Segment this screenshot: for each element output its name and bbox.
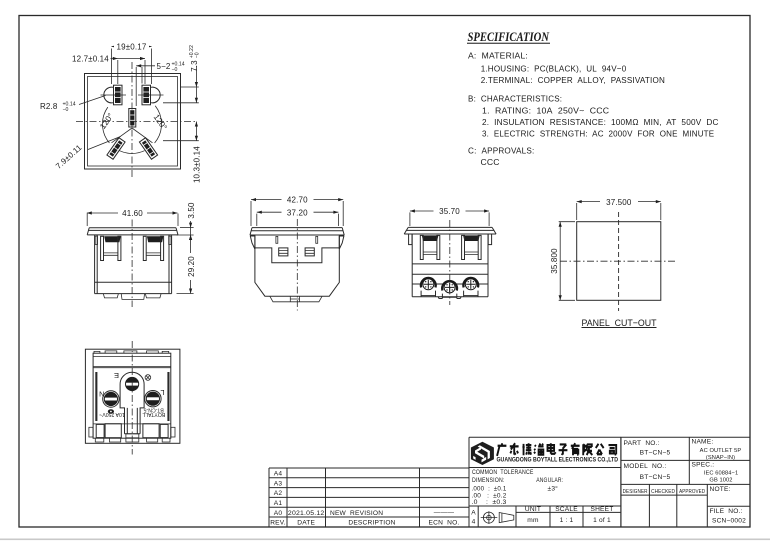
svg-text:.0 : ±0.3: .0 : ±0.3 — [472, 499, 507, 506]
svg-text:mm: mm — [527, 517, 539, 524]
svg-text:A0: A0 — [274, 510, 283, 517]
svg-text:E: E — [114, 371, 119, 380]
svg-text:7.3: 7.3 — [190, 60, 199, 72]
svg-text:4: 4 — [472, 519, 476, 526]
svg-text:BT-CN-5: BT-CN-5 — [144, 406, 164, 412]
svg-text:SPECIFICATION: SPECIFICATION — [468, 30, 550, 44]
svg-text:MODEL NO.:: MODEL NO.: — [624, 463, 667, 470]
svg-text:SHEET: SHEET — [591, 506, 614, 513]
svg-text:APPROVED: APPROVED — [679, 489, 705, 495]
svg-text:R2.8: R2.8 — [40, 102, 58, 111]
svg-text:10.3±0.14: 10.3±0.14 — [193, 146, 202, 183]
svg-text:42.70: 42.70 — [287, 196, 308, 205]
svg-text:1.HOUSING: PC(BLACK), UL 94: 1.HOUSING: PC(BLACK), UL 94V−0 — [481, 64, 627, 74]
svg-text:37.500: 37.500 — [606, 198, 632, 207]
svg-text:GUANGDONG BOYTALL ELECTRONICS: GUANGDONG BOYTALL ELECTRONICS CO.,LTD — [497, 457, 619, 464]
svg-text:19±0.17: 19±0.17 — [117, 42, 147, 51]
svg-text:2.TERMINAL: COPPER ALLOY, P: 2.TERMINAL: COPPER ALLOY, PASSIVATION — [481, 75, 665, 85]
svg-text:12.7±0.14: 12.7±0.14 — [72, 55, 109, 64]
svg-text:DESIGNER: DESIGNER — [623, 489, 648, 495]
svg-text:−0: −0 — [63, 107, 69, 113]
svg-text:DATE: DATE — [297, 520, 315, 527]
svg-text:L: L — [160, 388, 164, 397]
svg-text:(SNAP−IN): (SNAP−IN) — [706, 455, 735, 461]
svg-text:NEW REVISION: NEW REVISION — [330, 510, 383, 517]
svg-text:COMMON TOLERANCE: COMMON TOLERANCE — [472, 469, 534, 476]
svg-text:A: MATERIAL:: A: MATERIAL: — [468, 51, 528, 61]
svg-text:CHECKED: CHECKED — [651, 489, 675, 495]
svg-text:A4: A4 — [274, 471, 283, 478]
svg-text:B: CHARACTERISTICS:: B: CHARACTERISTICS: — [468, 94, 562, 104]
svg-text:3.50: 3.50 — [187, 202, 196, 219]
svg-text:ANGULAR:: ANGULAR: — [536, 477, 563, 484]
svg-text:1. RATING: 10A 250V~ CCC: 1. RATING: 10A 250V~ CCC — [482, 106, 609, 116]
svg-text:37.20: 37.20 — [287, 208, 308, 217]
svg-text:NOTE:: NOTE: — [710, 486, 731, 493]
svg-text:A1: A1 — [274, 500, 283, 507]
svg-text:GB 1002: GB 1002 — [709, 478, 732, 484]
svg-text:BT−CN−5: BT−CN−5 — [640, 474, 671, 481]
svg-text:PANEL CUT−OUT: PANEL CUT−OUT — [582, 318, 657, 329]
svg-text:1 : 1: 1 : 1 — [560, 517, 574, 524]
svg-text:−0: −0 — [195, 52, 201, 58]
svg-text:REV.: REV. — [270, 520, 286, 527]
svg-text:2021.05.12: 2021.05.12 — [288, 510, 325, 517]
svg-text:2. INSULATION RESISTANCE: 1: 2. INSULATION RESISTANCE: 100MΩ MIN, AT … — [482, 117, 719, 127]
svg-text:3. ELECTRIC STRENGTH: AC 2: 3. ELECTRIC STRENGTH: AC 2000V FOR ONE M… — [482, 129, 714, 139]
svg-text:C: APPROVALS:: C: APPROVALS: — [468, 145, 534, 155]
svg-text:41.60: 41.60 — [122, 209, 143, 218]
svg-text:———: ——— — [434, 509, 455, 516]
svg-text:SCN−0002: SCN−0002 — [712, 518, 746, 525]
svg-text:PART NO.:: PART NO.: — [624, 440, 660, 447]
svg-text:AC OUTLET 5P: AC OUTLET 5P — [700, 448, 742, 454]
svg-text:SPEC.:: SPEC.: — [692, 462, 715, 469]
svg-text:NAME:: NAME: — [692, 439, 714, 446]
svg-text:SCALE: SCALE — [555, 506, 578, 513]
svg-text:10A 250V~: 10A 250V~ — [99, 411, 125, 417]
svg-text:DIMENSION:: DIMENSION: — [472, 477, 505, 484]
svg-text:A2: A2 — [274, 490, 283, 497]
svg-text:±3°: ±3° — [548, 484, 559, 492]
svg-text:35.70: 35.70 — [439, 207, 460, 216]
svg-text:35.800: 35.800 — [550, 248, 559, 274]
svg-text:A: A — [471, 510, 476, 517]
svg-text:.000 : ±0.1: .000 : ±0.1 — [472, 485, 507, 492]
svg-text:DESCRIPTION: DESCRIPTION — [348, 520, 395, 527]
svg-text:FILE NO.:: FILE NO.: — [710, 508, 743, 515]
svg-text:ECN NO.: ECN NO. — [429, 520, 460, 527]
svg-text:CCC: CCC — [481, 157, 500, 167]
svg-text:BT−CN−5: BT−CN−5 — [640, 450, 671, 457]
svg-text:5−2: 5−2 — [157, 62, 171, 71]
svg-text:UNIT: UNIT — [525, 506, 541, 513]
svg-text:1 of 1: 1 of 1 — [593, 517, 611, 524]
svg-text:−0: −0 — [172, 67, 178, 73]
svg-text:29.20: 29.20 — [187, 256, 196, 277]
svg-text:A3: A3 — [274, 480, 283, 487]
svg-text:IEC 60884−1: IEC 60884−1 — [704, 470, 738, 476]
svg-text:N: N — [99, 389, 104, 398]
